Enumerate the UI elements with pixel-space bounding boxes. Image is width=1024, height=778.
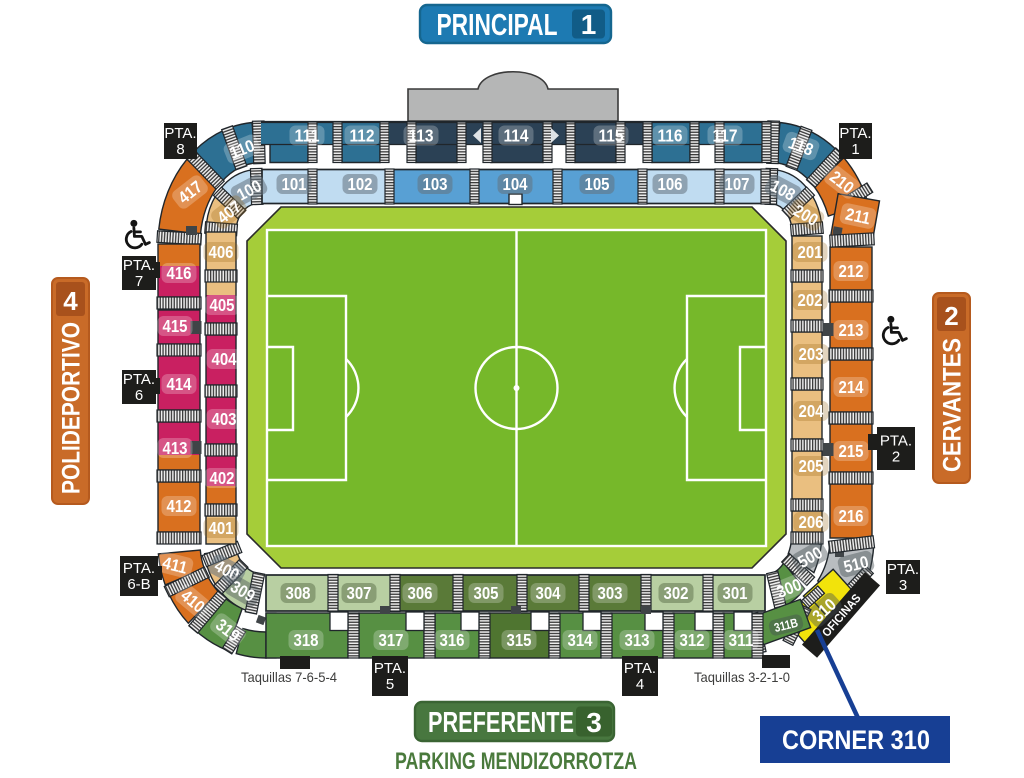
svg-text:114: 114 xyxy=(504,126,529,146)
svg-text:204: 204 xyxy=(799,401,824,421)
svg-text:315: 315 xyxy=(507,630,532,650)
svg-text:103: 103 xyxy=(423,174,448,194)
svg-text:212: 212 xyxy=(839,261,864,281)
svg-text:6: 6 xyxy=(135,387,143,404)
svg-text:305: 305 xyxy=(474,583,499,603)
svg-text:303: 303 xyxy=(598,583,623,603)
svg-text:CERVANTES: CERVANTES xyxy=(939,338,967,472)
svg-text:213: 213 xyxy=(839,320,864,340)
svg-text:3: 3 xyxy=(899,577,907,594)
svg-text:PRINCIPAL: PRINCIPAL xyxy=(437,7,558,42)
svg-text:412: 412 xyxy=(167,496,192,516)
svg-text:406: 406 xyxy=(209,242,234,262)
svg-text:8: 8 xyxy=(176,141,184,158)
svg-text:7: 7 xyxy=(135,273,143,290)
svg-text:201: 201 xyxy=(798,242,823,262)
svg-text:4: 4 xyxy=(63,286,78,316)
svg-text:214: 214 xyxy=(839,377,864,397)
svg-text:PTA.: PTA. xyxy=(624,660,656,677)
svg-text:307: 307 xyxy=(347,583,372,603)
svg-text:215: 215 xyxy=(839,441,864,461)
svg-text:311: 311 xyxy=(729,630,754,650)
svg-text:312: 312 xyxy=(680,630,705,650)
svg-text:415: 415 xyxy=(163,316,188,336)
svg-text:414: 414 xyxy=(167,374,192,394)
svg-text:306: 306 xyxy=(408,583,433,603)
svg-text:104: 104 xyxy=(503,174,528,194)
svg-text:206: 206 xyxy=(799,512,824,532)
svg-text:205: 205 xyxy=(799,456,824,476)
svg-text:Taquillas 7-6-5-4: Taquillas 7-6-5-4 xyxy=(241,669,337,685)
svg-text:202: 202 xyxy=(798,290,823,310)
svg-text:413: 413 xyxy=(163,438,188,458)
svg-text:PTA.: PTA. xyxy=(374,660,406,677)
svg-text:304: 304 xyxy=(536,583,561,603)
svg-text:4: 4 xyxy=(636,676,644,693)
svg-text:3: 3 xyxy=(586,707,602,738)
svg-text:PTA.: PTA. xyxy=(123,257,155,274)
svg-text:301: 301 xyxy=(723,583,748,603)
svg-text:404: 404 xyxy=(212,349,237,369)
svg-text:116: 116 xyxy=(658,126,683,146)
svg-text:PTA.: PTA. xyxy=(164,125,196,142)
svg-text:318: 318 xyxy=(294,630,319,650)
svg-text:115: 115 xyxy=(599,126,624,146)
svg-text:PTA.: PTA. xyxy=(880,433,912,450)
svg-text:203: 203 xyxy=(799,344,824,364)
svg-text:401: 401 xyxy=(209,518,234,538)
svg-text:403: 403 xyxy=(212,409,237,429)
svg-text:5: 5 xyxy=(386,676,394,693)
svg-text:CORNER 310: CORNER 310 xyxy=(782,725,930,755)
svg-text:PTA.: PTA. xyxy=(123,371,155,388)
svg-text:1: 1 xyxy=(851,141,859,158)
svg-text:316: 316 xyxy=(440,630,465,650)
svg-text:111: 111 xyxy=(295,126,320,146)
svg-text:PTA.: PTA. xyxy=(839,125,871,142)
svg-text:PTA.: PTA. xyxy=(123,560,155,577)
svg-text:107: 107 xyxy=(725,174,750,194)
svg-text:101: 101 xyxy=(282,174,307,194)
svg-text:102: 102 xyxy=(348,174,373,194)
svg-text:405: 405 xyxy=(210,295,235,315)
svg-text:POLIDEPORTIVO: POLIDEPORTIVO xyxy=(58,322,86,494)
svg-text:112: 112 xyxy=(350,126,375,146)
svg-text:2: 2 xyxy=(944,301,958,331)
svg-text:308: 308 xyxy=(286,583,311,603)
svg-text:PREFERENTE: PREFERENTE xyxy=(428,707,574,739)
svg-text:117: 117 xyxy=(713,126,738,146)
svg-text:2: 2 xyxy=(892,449,900,466)
svg-text:113: 113 xyxy=(409,126,434,146)
svg-text:PTA.: PTA. xyxy=(887,561,919,578)
svg-text:105: 105 xyxy=(585,174,610,194)
svg-text:PARKING MENDIZORROTZA: PARKING MENDIZORROTZA xyxy=(395,748,637,775)
svg-text:402: 402 xyxy=(210,468,235,488)
svg-text:313: 313 xyxy=(625,630,650,650)
svg-text:1: 1 xyxy=(581,9,597,40)
svg-text:Taquillas 3-2-1-0: Taquillas 3-2-1-0 xyxy=(694,669,790,685)
svg-text:6-B: 6-B xyxy=(127,576,150,593)
svg-text:302: 302 xyxy=(664,583,689,603)
svg-text:314: 314 xyxy=(568,630,593,650)
svg-text:416: 416 xyxy=(167,263,192,283)
svg-text:216: 216 xyxy=(839,506,864,526)
svg-text:106: 106 xyxy=(658,174,683,194)
svg-text:317: 317 xyxy=(379,630,404,650)
